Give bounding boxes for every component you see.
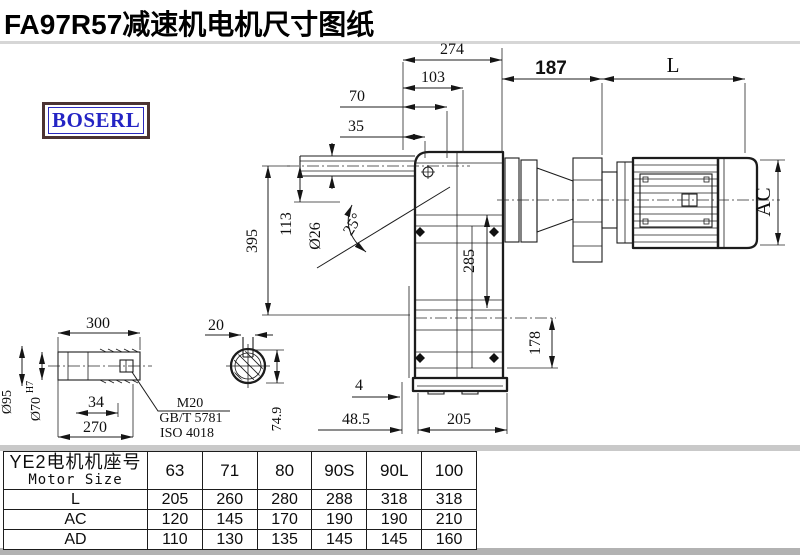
dim-label-dia70: Ø70	[29, 397, 44, 421]
dim-label-274: 274	[440, 41, 464, 58]
dim-label-4: 4	[355, 377, 363, 394]
table-header-row: YE2电机机座号 Motor Size 63718090S90L100	[4, 452, 477, 490]
dimension-labels: 2741037035187LAC395113Ø2625°285178448.52…	[0, 41, 775, 441]
dim-label-dia95: Ø95	[0, 390, 15, 414]
cell-AD-90L: 145	[367, 530, 422, 550]
dim-label-ISO4018: ISO 4018	[160, 426, 214, 441]
motor-size-col-90S: 90S	[312, 452, 367, 490]
page: FA97R57减速机电机尺寸图纸 BOSERL	[0, 0, 800, 555]
cell-AD-80: 135	[257, 530, 312, 550]
dim-label-300: 300	[86, 315, 110, 332]
cell-AC-80: 170	[257, 510, 312, 530]
dim-label-270: 270	[83, 419, 107, 436]
dim-label-20: 20	[208, 317, 224, 334]
cell-AD-63: 110	[148, 530, 203, 550]
hollow-shaft	[287, 156, 470, 176]
dim-label-205: 205	[447, 411, 471, 428]
motor-size-col-80: 80	[257, 452, 312, 490]
row-label-L: L	[4, 490, 148, 510]
cell-AC-71: 145	[202, 510, 257, 530]
row-label-AD: AD	[4, 530, 148, 550]
cell-L-71: 260	[202, 490, 257, 510]
motor-size-col-100: 100	[422, 452, 477, 490]
dim-label-187: 187	[535, 58, 567, 79]
header-en: Motor Size	[4, 472, 147, 488]
table-row-L: L205260280288318318	[4, 490, 477, 510]
motor-size-table: YE2电机机座号 Motor Size 63718090S90L100 L205…	[3, 451, 477, 550]
dim-label-35: 35	[348, 118, 364, 135]
dim-label-25deg: 25°	[340, 211, 366, 239]
dim-label-dia26: Ø26	[307, 222, 324, 250]
cell-AD-100: 160	[422, 530, 477, 550]
dim-label-34: 34	[88, 394, 104, 411]
dim-label-395: 395	[244, 229, 261, 253]
dim-label-285: 285	[461, 249, 478, 273]
motor-size-col-71: 71	[202, 452, 257, 490]
table-corner-header: YE2电机机座号 Motor Size	[4, 452, 148, 490]
cell-AC-90S: 190	[312, 510, 367, 530]
cell-AC-90L: 190	[367, 510, 422, 530]
motor-panel	[640, 174, 712, 227]
motor	[415, 158, 780, 318]
cell-L-100: 318	[422, 490, 477, 510]
dim-label-L: L	[667, 53, 680, 77]
dim-label-H7: H7	[25, 381, 36, 393]
motor-size-col-90L: 90L	[367, 452, 422, 490]
cell-AC-100: 210	[422, 510, 477, 530]
table-row-AC: AC120145170190190210	[4, 510, 477, 530]
dim-label-48.5: 48.5	[342, 411, 370, 428]
motor-size-col-63: 63	[148, 452, 203, 490]
dim-label-AC: AC	[751, 187, 775, 216]
cell-AD-71: 130	[202, 530, 257, 550]
table-row-AD: AD110130135145145160	[4, 530, 477, 550]
dim-label-70: 70	[349, 88, 365, 105]
cell-AD-90S: 145	[312, 530, 367, 550]
r57-reducer	[505, 158, 617, 262]
dim-label-GBT5781: GB/T 5781	[159, 411, 222, 426]
dim-label-113: 113	[278, 212, 295, 235]
keyway-section-view	[200, 336, 284, 394]
cell-L-90S: 288	[312, 490, 367, 510]
cell-L-80: 280	[257, 490, 312, 510]
dim-label-103: 103	[421, 69, 445, 86]
cell-L-90L: 318	[367, 490, 422, 510]
header-cn: YE2电机机座号	[4, 453, 147, 472]
section-hatch	[200, 336, 284, 394]
dim-label-74.9: 74.9	[270, 407, 285, 432]
row-label-AC: AC	[4, 510, 148, 530]
dim-label-178: 178	[527, 331, 544, 355]
main-view	[287, 152, 780, 394]
gearbox-body	[317, 152, 507, 394]
cell-L-63: 205	[148, 490, 203, 510]
cell-AC-63: 120	[148, 510, 203, 530]
dim-label-M20: M20	[177, 396, 203, 411]
